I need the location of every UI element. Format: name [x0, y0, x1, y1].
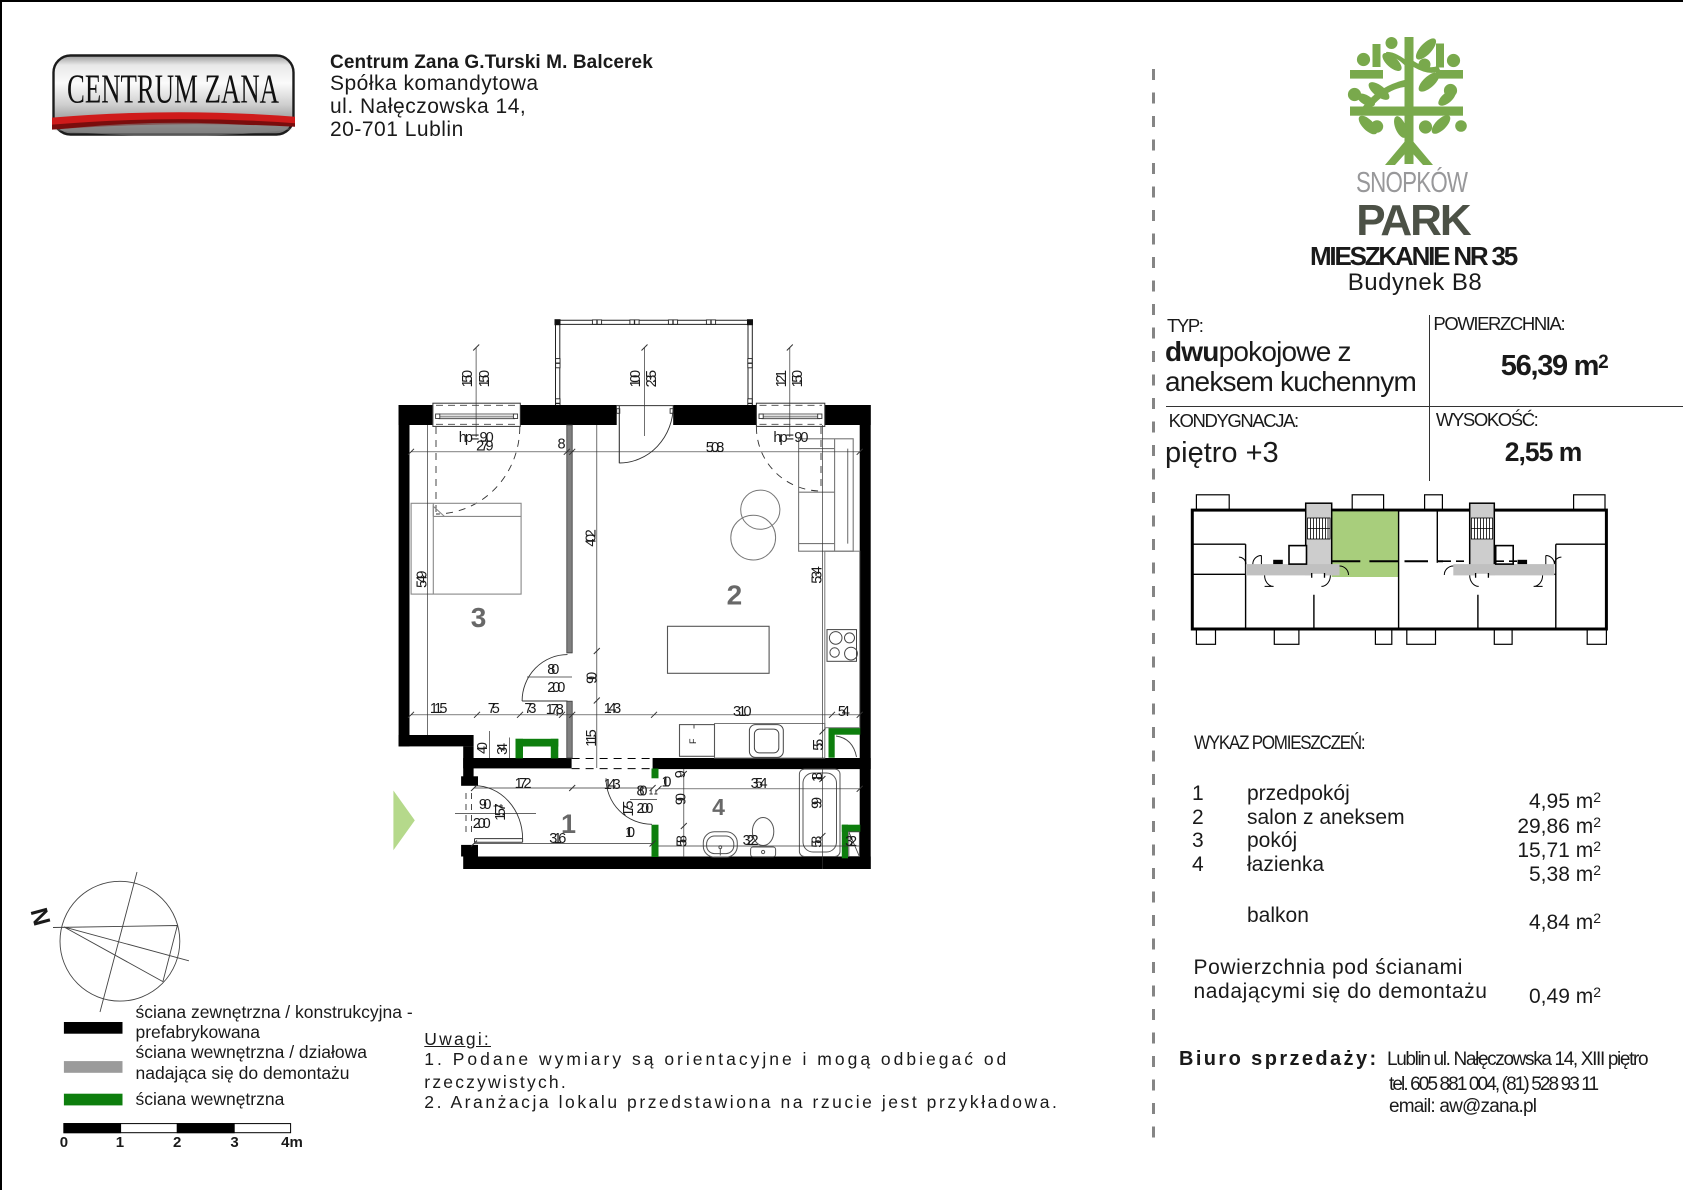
svg-text:279: 279 — [476, 439, 494, 455]
svg-text:310: 310 — [733, 704, 752, 720]
svg-text:73: 73 — [524, 701, 536, 717]
svg-text:1: 1 — [116, 1134, 124, 1151]
svg-text:34: 34 — [495, 743, 511, 755]
svg-text:80: 80 — [547, 662, 559, 678]
svg-text:402: 402 — [584, 529, 600, 547]
svg-text:F: F — [688, 738, 698, 744]
svg-text:58: 58 — [675, 835, 691, 847]
svg-text:9: 9 — [673, 770, 689, 778]
svg-text:200: 200 — [637, 801, 654, 817]
svg-text:200: 200 — [547, 680, 565, 696]
svg-text:18: 18 — [810, 772, 826, 782]
svg-text:55: 55 — [811, 739, 827, 751]
svg-text:hp= 90: hp= 90 — [773, 430, 808, 446]
svg-text:4m: 4m — [281, 1134, 303, 1151]
svg-text:354: 354 — [751, 776, 768, 792]
svg-text:0: 0 — [60, 1134, 68, 1151]
svg-text:2: 2 — [173, 1134, 181, 1151]
svg-text:100: 100 — [628, 370, 644, 388]
svg-text:172: 172 — [515, 776, 532, 792]
svg-text:32: 32 — [845, 834, 857, 850]
svg-text:80: 80 — [637, 783, 648, 799]
svg-text:54: 54 — [838, 704, 850, 720]
svg-text:N: N — [26, 905, 57, 929]
svg-text:90: 90 — [479, 797, 492, 813]
svg-text:4: 4 — [712, 794, 725, 820]
svg-text:143: 143 — [604, 777, 621, 793]
svg-text:40: 40 — [475, 742, 491, 754]
svg-text:316: 316 — [549, 831, 566, 847]
svg-text:115: 115 — [430, 701, 448, 717]
svg-text:58: 58 — [810, 836, 826, 848]
svg-text:322: 322 — [743, 833, 759, 849]
svg-text:115: 115 — [584, 729, 600, 747]
svg-text:175: 175 — [621, 801, 637, 817]
svg-text:549: 549 — [414, 571, 430, 589]
svg-text:235: 235 — [644, 370, 660, 388]
svg-text:2: 2 — [727, 580, 743, 611]
svg-text:8: 8 — [558, 437, 566, 453]
svg-text:150: 150 — [477, 370, 493, 388]
svg-text:3: 3 — [471, 602, 487, 633]
svg-text:17,8: 17,8 — [546, 702, 564, 718]
svg-text:150: 150 — [790, 370, 806, 388]
svg-text:10: 10 — [662, 774, 672, 790]
svg-text:121: 121 — [774, 370, 790, 388]
svg-text:508: 508 — [706, 440, 725, 456]
svg-text:75: 75 — [488, 701, 500, 717]
svg-text:10: 10 — [625, 825, 635, 841]
svg-text:200: 200 — [473, 816, 491, 832]
svg-text:534: 534 — [809, 566, 825, 584]
svg-text:99: 99 — [810, 797, 826, 809]
svg-text:157: 157 — [493, 803, 509, 821]
svg-text:143: 143 — [604, 701, 622, 717]
svg-text:90: 90 — [585, 672, 601, 684]
svg-text:3: 3 — [230, 1134, 238, 1151]
svg-text:150: 150 — [460, 370, 476, 388]
svg-text:90: 90 — [674, 793, 690, 805]
